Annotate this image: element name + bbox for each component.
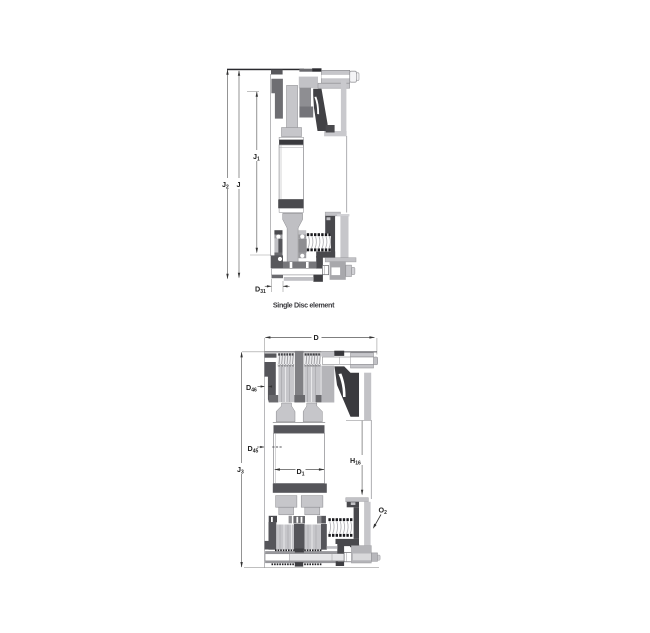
svg-text:H16: H16 xyxy=(350,456,361,467)
svg-text:Single Disc element: Single Disc element xyxy=(273,300,335,309)
svg-text:D46: D46 xyxy=(246,383,257,394)
svg-text:J: J xyxy=(237,180,241,189)
svg-text:D: D xyxy=(314,333,319,342)
svg-text:O2: O2 xyxy=(379,506,388,517)
svg-text:D31: D31 xyxy=(255,285,266,296)
svg-text:D45: D45 xyxy=(248,444,259,455)
